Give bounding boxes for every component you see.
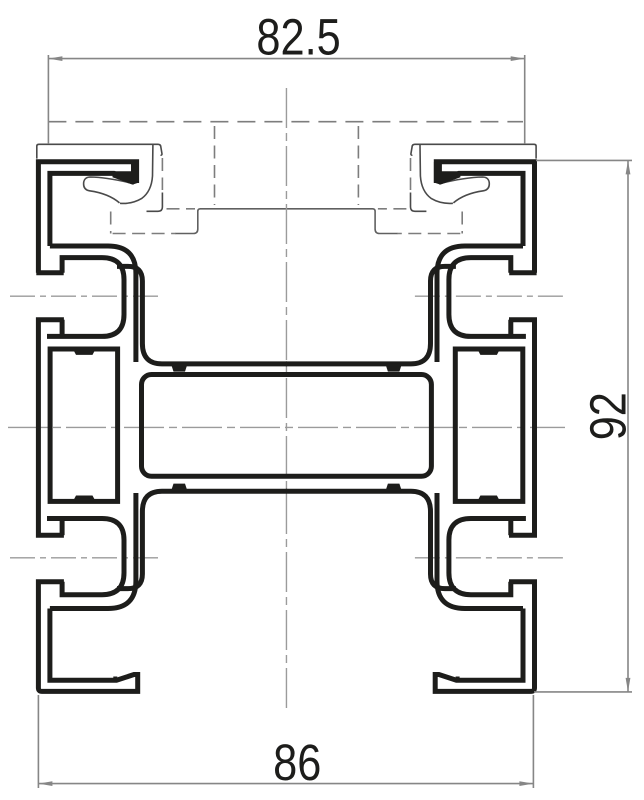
svg-text:86: 86: [273, 735, 321, 792]
svg-text:92: 92: [580, 392, 637, 440]
svg-text:82.5: 82.5: [256, 9, 340, 66]
